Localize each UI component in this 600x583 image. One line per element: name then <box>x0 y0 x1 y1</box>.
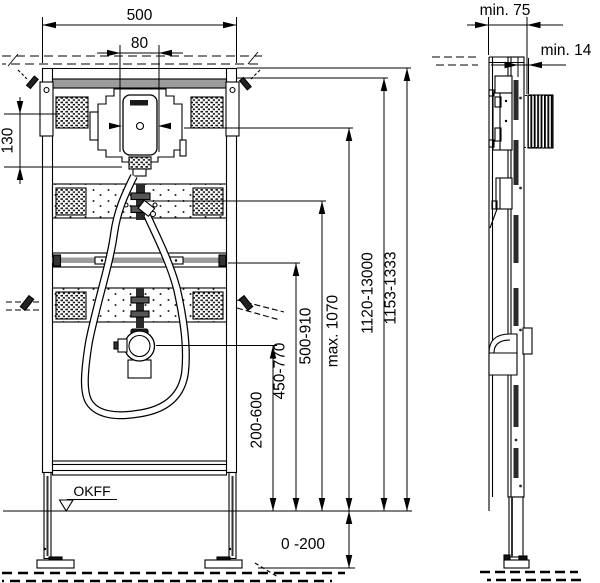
ceiling-anchor-screw-left <box>18 70 38 89</box>
lower-mounting-rail <box>53 288 227 328</box>
dim-bracket-offset-label: 130 <box>0 127 17 153</box>
dim-200-600-label: 200-600 <box>249 391 266 448</box>
dim-450-770-label: 450-770 <box>272 342 289 399</box>
ceiling-dashed-lines <box>2 52 262 66</box>
front-view <box>2 52 284 568</box>
drain-connector <box>114 329 155 378</box>
dim-max-1070-label: max. 1070 <box>325 294 342 367</box>
dim-1120-13000-label: 1120-13000 <box>360 252 377 334</box>
dim-min-clearance-label: min. 14 <box>541 42 592 59</box>
wall-anchor-right <box>237 296 284 320</box>
side-drain-elbow <box>489 328 532 375</box>
dim-foot-adjustment: 0 -200 <box>258 511 355 568</box>
side-ceiling-dashes <box>432 57 480 65</box>
dim-1153-1333-label: 1153-1333 <box>383 252 400 325</box>
dim-foot-adjustment-label: 0 -200 <box>281 536 325 553</box>
side-floor-dashes <box>480 572 584 580</box>
flush-valve-unit <box>90 89 186 176</box>
dim-500-910-label: 500-910 <box>298 307 315 364</box>
okff-label: OKFF <box>73 483 110 499</box>
dim-min-depth-label: min. 75 <box>480 2 531 19</box>
side-foot <box>504 497 529 568</box>
wall-anchor-left <box>6 296 42 311</box>
upper-mounting-rail <box>53 184 227 220</box>
finished-wall-block <box>524 95 553 148</box>
ceiling-anchor-screw-right <box>240 70 260 90</box>
okff-level-marker <box>60 500 74 511</box>
dim-flush-unit-width-label: 80 <box>131 35 149 52</box>
dim-200-600: 200-600 <box>156 346 277 512</box>
side-view <box>432 57 584 580</box>
adjustable-feet <box>37 473 242 569</box>
dim-frame-width-label: 500 <box>127 7 153 24</box>
crossbar <box>53 253 227 267</box>
side-connector-stub <box>523 328 532 354</box>
technical-drawing: OKFF <box>0 0 600 583</box>
